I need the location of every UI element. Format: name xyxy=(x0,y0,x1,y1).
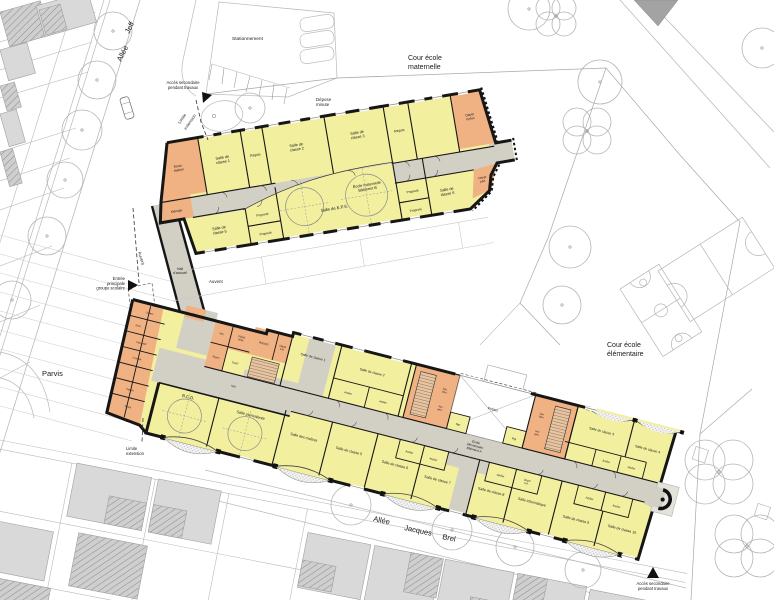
svg-text:Accès secondairependant travau: Accès secondairependant travaux xyxy=(636,581,670,591)
svg-text:Parvis: Parvis xyxy=(42,369,63,378)
svg-text:Auvent: Auvent xyxy=(209,279,223,284)
svg-text:Accès secondairependant travau: Accès secondairependant travaux xyxy=(166,80,200,90)
svg-text:Stationnement: Stationnement xyxy=(232,36,264,42)
